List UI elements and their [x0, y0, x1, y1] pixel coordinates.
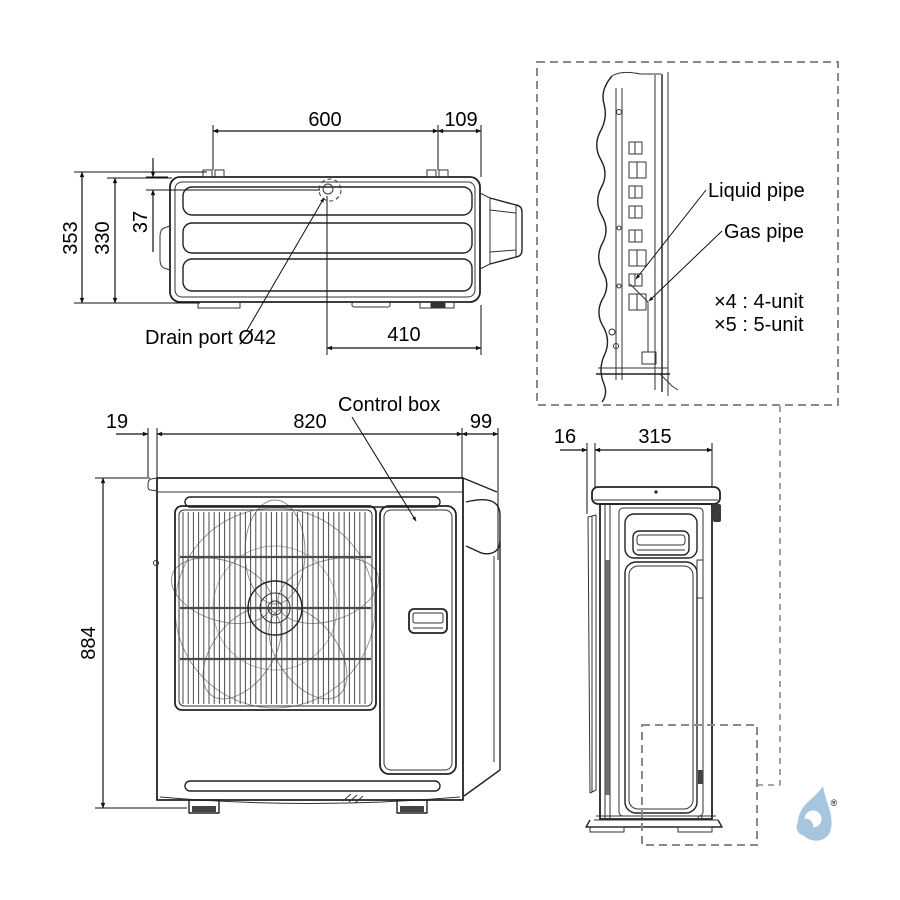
front-view: 19 820 99 884 Control box	[78, 394, 500, 813]
dim-410: 410	[387, 324, 420, 346]
dim-99: 99	[470, 411, 492, 433]
valve-stubs	[629, 142, 646, 310]
drain-port-leader-line	[246, 198, 324, 332]
top-view-mounting-brackets	[203, 170, 448, 177]
top-view-body-outline	[170, 177, 480, 302]
side-view-rear-panel	[625, 562, 697, 813]
dim-820: 820	[293, 411, 326, 433]
detail-torn-edge	[597, 76, 612, 402]
dim-600: 600	[308, 109, 341, 131]
fan	[163, 500, 387, 713]
brand-logo: ®	[797, 786, 838, 841]
front-view-feet	[160, 794, 460, 813]
drawing-canvas: Drain port Ø42 600 109 353 330 37 410	[0, 0, 900, 900]
top-view-left-bracket	[160, 226, 170, 270]
unit-note-line2: ×5 : 5-unit	[714, 314, 804, 336]
gas-pipe-label: Gas pipe	[724, 221, 804, 243]
dim-109: 109	[444, 109, 477, 131]
side-view-top-cap	[592, 487, 720, 504]
side-view-body-outline	[600, 504, 712, 819]
dim-19: 19	[106, 411, 128, 433]
control-box-label: Control box	[338, 394, 440, 416]
top-view-pipe-cover	[480, 193, 522, 269]
dim-330: 330	[92, 221, 114, 254]
liquid-pipe-label: Liquid pipe	[708, 180, 805, 202]
front-view-body-outline	[157, 478, 463, 800]
registered-trademark: ®	[831, 798, 838, 808]
front-view-left-cap	[148, 478, 157, 491]
gas-pipe-leader	[649, 231, 722, 301]
side-view-right-clip	[713, 504, 721, 522]
liquid-pipe-leader	[636, 190, 706, 279]
front-bottom-vent-slot	[185, 781, 440, 791]
dim-884: 884	[78, 626, 100, 659]
service-handle	[409, 609, 447, 633]
side-view-top-box	[625, 514, 697, 558]
dim-353: 353	[60, 221, 82, 254]
unit-note-line1: ×4 : 4-unit	[714, 291, 804, 313]
control-box-panel	[380, 506, 456, 774]
piping-detail-view: Liquid pipe Gas pipe ×4 : 4-unit ×5 : 5-…	[537, 62, 838, 405]
top-view: Drain port Ø42 600 109 353 330 37 410	[60, 109, 522, 355]
dim-37: 37	[130, 211, 152, 233]
coil-edge	[605, 560, 610, 795]
dimension-drawing-page: Drain port Ø42 600 109 353 330 37 410	[0, 0, 900, 900]
dim-16: 16	[554, 426, 576, 448]
side-view: 16 315	[554, 406, 780, 845]
dim-315: 315	[638, 426, 671, 448]
drain-port	[323, 184, 333, 194]
front-view-right-side	[463, 478, 500, 796]
drain-port-label: Drain port Ø42	[145, 327, 276, 349]
